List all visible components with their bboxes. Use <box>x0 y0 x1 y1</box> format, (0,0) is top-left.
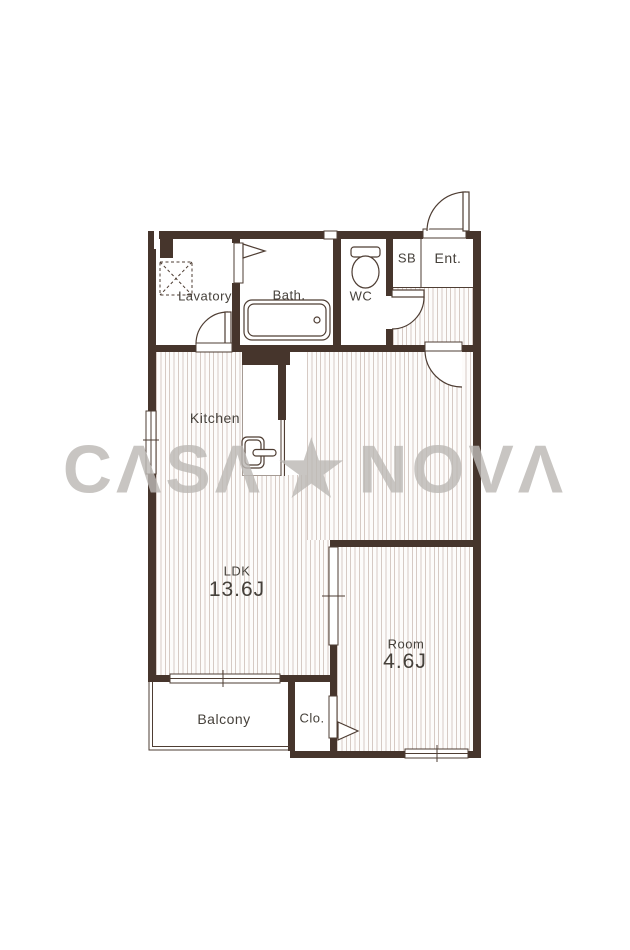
ldk-room-sliding-door <box>322 547 345 645</box>
ldk-door <box>425 342 462 387</box>
room-window <box>405 745 468 762</box>
toilet-icon <box>351 247 380 288</box>
pipe-slit <box>154 239 159 249</box>
bath-vent <box>324 231 337 239</box>
room-label-balcony: Balcony <box>197 711 250 727</box>
room-label-kitchen: Kitchen <box>190 410 240 426</box>
kitchen-window <box>143 411 159 474</box>
bathtub-icon <box>244 300 330 340</box>
entrance-door <box>423 192 469 238</box>
room-label-ldk: LDK <box>224 564 251 579</box>
wc-door <box>392 290 424 329</box>
room-area-ldk: 13.6J <box>209 578 265 602</box>
bath-folding-door <box>234 243 265 283</box>
room-label-lavatory: Lavatory <box>178 289 232 304</box>
room-area-room: 4.6J <box>383 650 427 674</box>
floor-plan: Lavatory Bath. WC SB Ent. Kitchen LDK 13… <box>0 0 630 950</box>
room-label-entrance: Ent. <box>435 250 462 266</box>
closet-folding-door <box>329 696 358 740</box>
room-label-closet: Clo. <box>299 711 324 726</box>
kitchen-sink-icon <box>242 437 276 468</box>
room-label-bath: Bath. <box>273 288 306 303</box>
lavatory-door <box>196 312 232 352</box>
plan-symbols <box>0 0 630 950</box>
balcony-window <box>170 670 280 687</box>
room-label-wc: WC <box>350 289 373 304</box>
room-label-sb: SB <box>398 251 416 266</box>
